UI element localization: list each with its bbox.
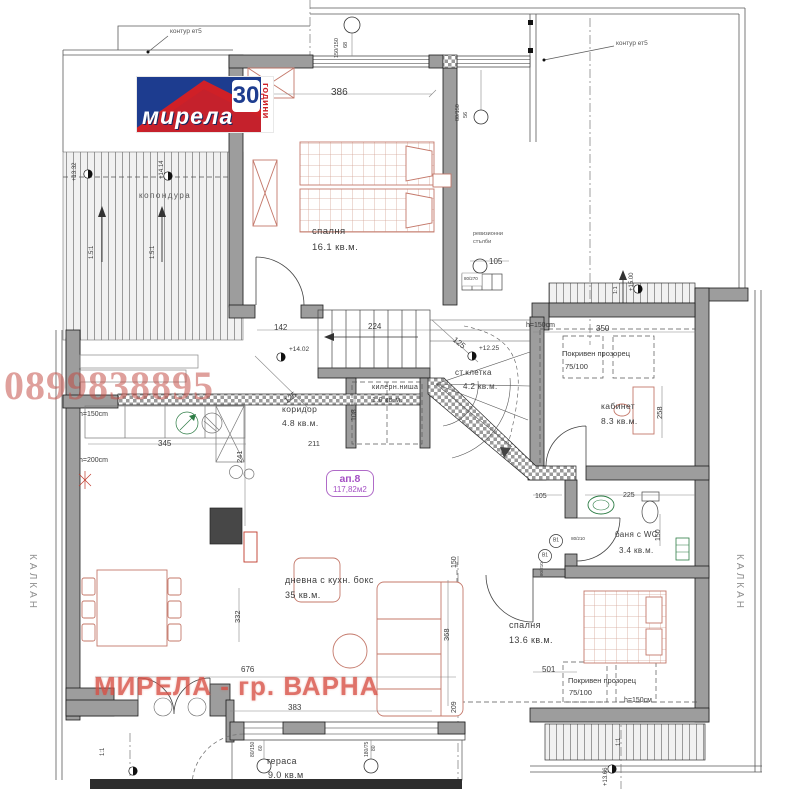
door-mark-b1-upper xyxy=(550,535,563,548)
bath-sink xyxy=(588,496,614,514)
skylight-hatch-area xyxy=(63,152,243,340)
terrace-outline xyxy=(232,740,462,780)
agency-watermark: МИРЕЛА - гр. ВАРНА xyxy=(94,671,379,702)
phone-watermark: 0899838895 xyxy=(4,362,214,409)
coffee-table xyxy=(333,634,367,668)
armchair xyxy=(294,558,340,602)
floor-plan-page: контур ет5контур ет5386150/1506880/15056… xyxy=(0,0,800,789)
logo-years-label: години xyxy=(260,83,271,119)
desk xyxy=(633,387,654,434)
dining-table xyxy=(97,570,167,646)
logo-years-strip: години xyxy=(261,77,273,132)
revision-stairs xyxy=(462,273,502,290)
apartment-area: 117,82м2 xyxy=(333,485,367,494)
mirela-logo: мирела 30 години xyxy=(137,77,273,132)
logo-brand-name: мирела xyxy=(142,103,233,130)
toilet xyxy=(642,501,658,523)
bath-fixtures xyxy=(539,492,690,563)
lower-floor-wall xyxy=(90,779,462,789)
logo-30-badge: 30 xyxy=(232,80,260,112)
fireplace xyxy=(210,508,242,544)
door-mark-b1-lower xyxy=(539,550,552,563)
stairs-main xyxy=(318,310,430,368)
sofa xyxy=(377,582,463,716)
apartment-id: ап.8 xyxy=(333,473,367,485)
radiator xyxy=(676,538,689,560)
apartment-badge: ап.8 117,82м2 xyxy=(326,470,374,497)
